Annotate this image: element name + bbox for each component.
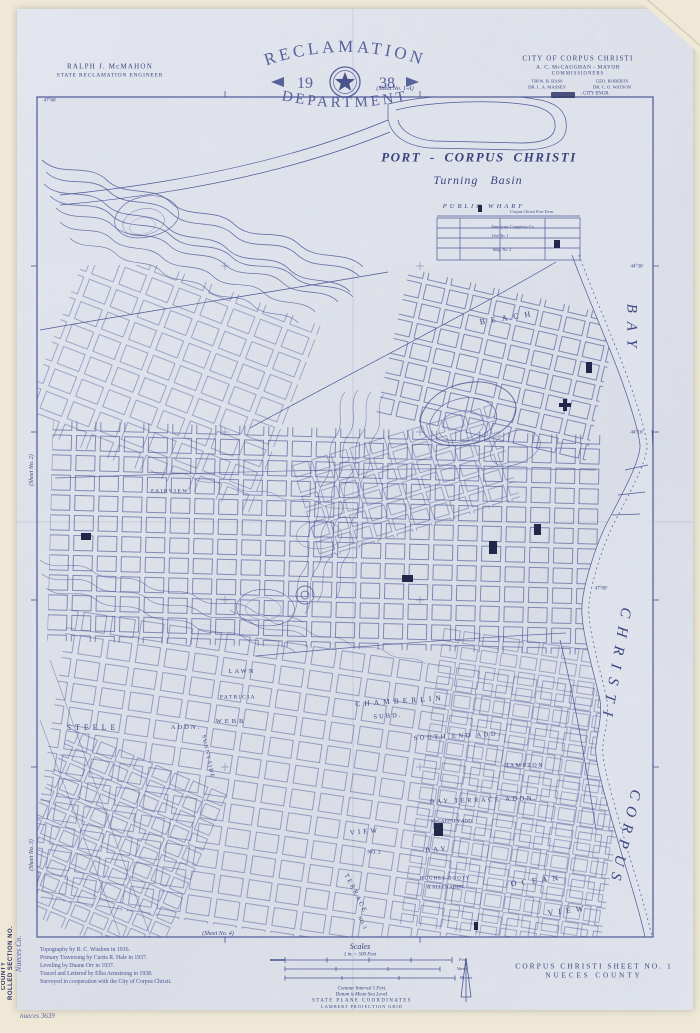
port-subtitle: Turning Basin [433, 174, 522, 186]
contour-interval-note: Contour Interval 5 Feet. [338, 987, 387, 992]
engineer-name: RALPH J. McMAHON [67, 64, 153, 71]
rolled-section-stamp-line2: COUNTY [1, 962, 7, 990]
bay-label-bay: BAY [624, 304, 639, 357]
coord-label-e1: 44°36' [631, 265, 644, 270]
area-label-hughes-booty: HUGHES BOOTY [420, 877, 471, 882]
sheet-title-line2: NUECES COUNTY [545, 973, 642, 980]
coord-label-e2: 44°16' [631, 431, 644, 436]
ink-smudge [551, 92, 575, 98]
city-engineer: - CITY ENGR. [580, 93, 609, 98]
commissioner-2: GEO. ROBERTS [596, 80, 628, 85]
city-title: CITY OF CORPUS CHRISTI [522, 56, 633, 63]
area-label-no2: NO. 2 [367, 850, 380, 856]
lambert-grid-note: LAMBERT PROJECTION GRID [321, 1005, 403, 1009]
credit-line-3: Leveling by Duane Orr in 1937. [40, 964, 114, 970]
commissioner-3: DR. L. A. MASSEY [528, 86, 566, 91]
sheet-ref-left-upper: (Sheet No. 2) [29, 454, 35, 486]
city-commissioners-heading: COMMISSIONERS [552, 73, 604, 78]
coord-label-e3: 47°00' [595, 587, 608, 592]
scale-unit-meters: Meters [460, 976, 473, 981]
area-label-fairview: FAIRVIEW [151, 489, 189, 495]
unit1-label: Unit No. 1 [492, 234, 509, 238]
sheet-ref-top: (Sheet No. 1-A) [376, 86, 413, 92]
unit2-label: Bldg. No. 2 [493, 248, 511, 252]
area-label-lawn: LAWN [229, 669, 256, 676]
area-label-patricia: PATRICIA [220, 695, 256, 701]
sheet-ref-left-lower: (Sheet No. 3) [29, 839, 35, 871]
corner-fold [638, 0, 700, 54]
area-label-hampton: HAMPTON [504, 763, 544, 769]
paper-grain-texture [17, 9, 693, 1010]
scale-unit-varas: Varas [457, 967, 467, 972]
coord-label-nw: 47°06' [44, 99, 57, 104]
area-label-mccaffney: McCAFFNEY ADD. [431, 820, 473, 825]
scale-subtitle: 1 in. = 500 Feet [344, 953, 376, 958]
datum-note: Datum is Mean Sea Level. [336, 993, 389, 998]
credit-line-5: Surveyed in cooperation with the City of… [40, 980, 172, 986]
area-label-allen-addn: & ALLEN ADDN. [427, 886, 465, 891]
port-terminal-label: Corpus Christi Port Term. [510, 210, 554, 214]
commissioner-1: THOS. B. BASS [531, 80, 562, 85]
city-mayor: A. C. McCAUGHAN - MAYOR [536, 65, 620, 71]
sheet-ref-bottom: (Sheet No. 4) [202, 931, 234, 937]
credit-line-1: Topography by R. C. Wisdom in 1936. [40, 948, 130, 954]
credit-line-4: Traced and Lettered by Elba Armstrong in… [40, 972, 152, 978]
scale-title: Scales [350, 943, 370, 951]
commissioner-4: DR. C. O. WATSON [593, 86, 631, 91]
area-label-steele-addn: ADDN. [171, 725, 201, 732]
scale-unit-feet: Feet [459, 958, 467, 963]
engineer-title: STATE RECLAMATION ENGINEER [57, 73, 164, 79]
scanned-map-page: { "colors": { "ink": "#4a5494", "ink_dar… [0, 0, 700, 1033]
port-title: PORT - CORPUS CHRISTI [381, 151, 577, 164]
compress-co-label: American Compress Co. [491, 225, 535, 230]
area-label-steele: STEELE [67, 724, 120, 732]
credit-line-2: Primary Traversing by Curtis R. Hale in … [40, 956, 147, 962]
sheet-title-line1: CORPUS CHRISTI SHEET NO. 1 [515, 962, 673, 970]
catalog-number-handwriting: nueces 3639 [20, 1013, 55, 1020]
area-label-webb: WEBB [216, 719, 247, 726]
county-handwriting: Nueces Co. [15, 936, 23, 972]
